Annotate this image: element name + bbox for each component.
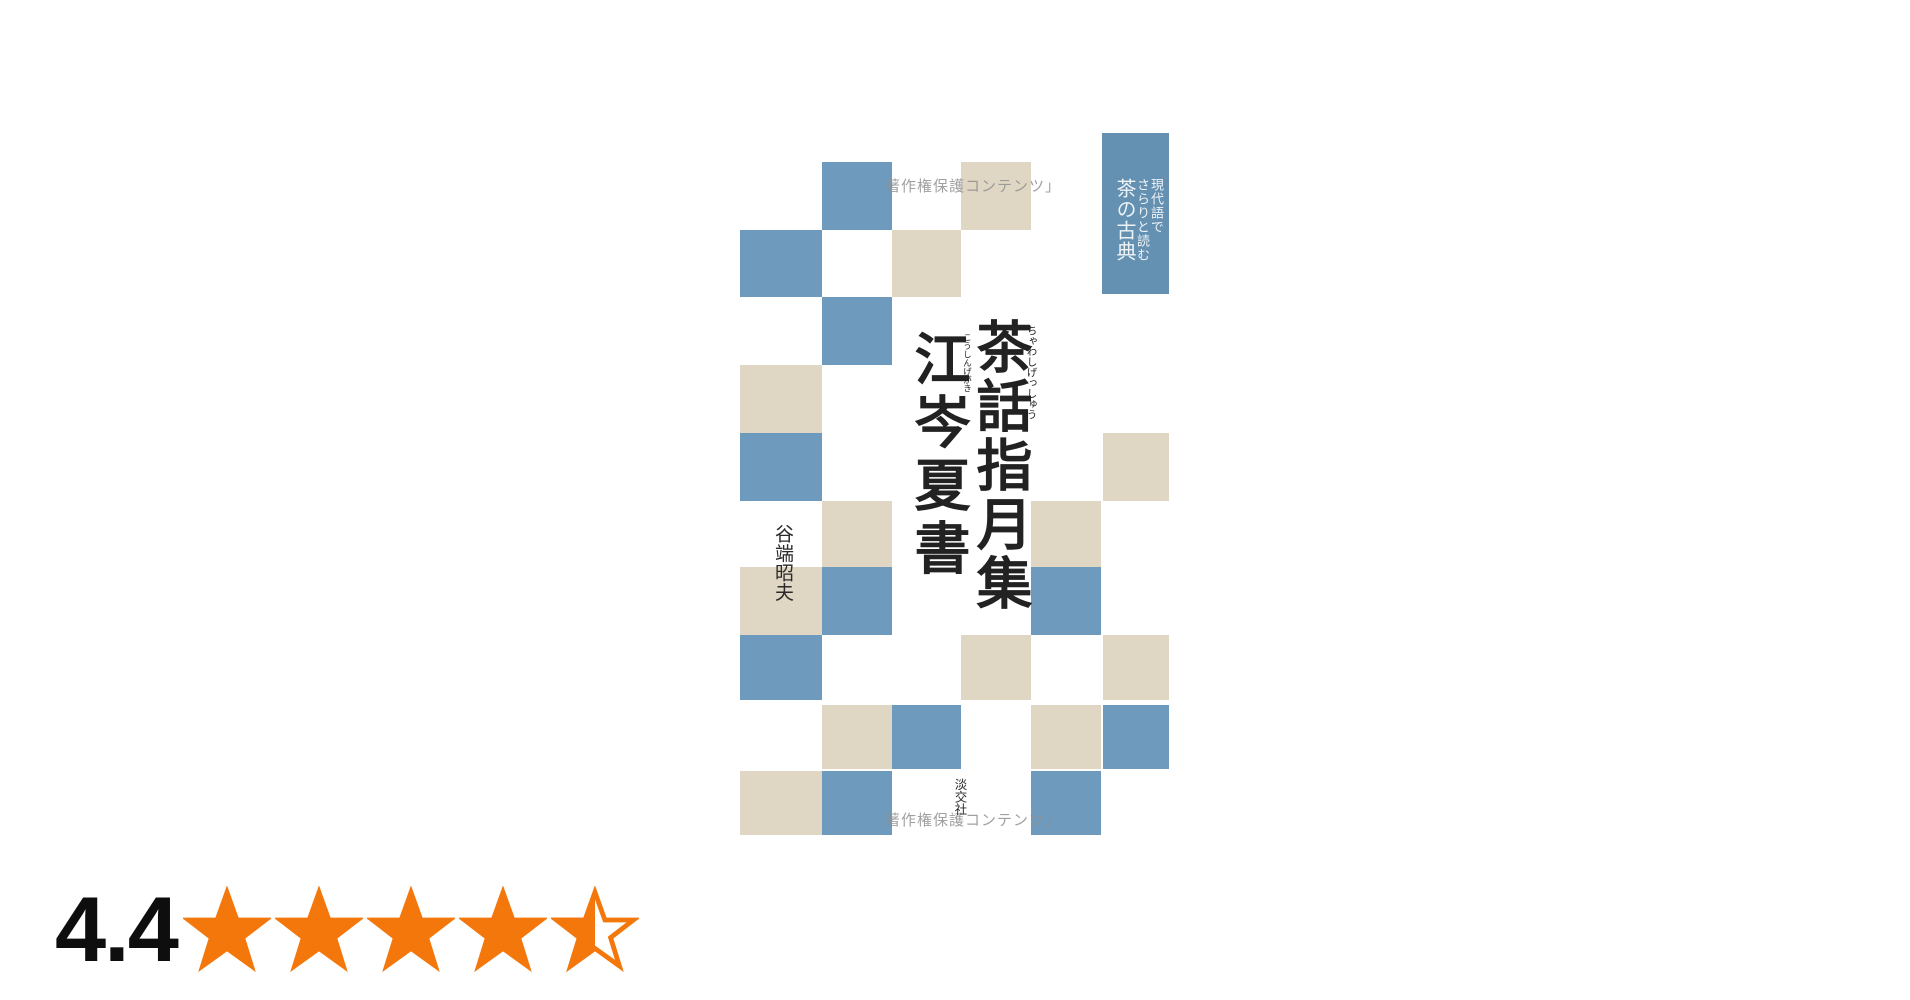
checker-square-beige — [961, 162, 1031, 230]
checker-square-beige — [1031, 705, 1101, 769]
checker-square-beige — [822, 705, 892, 769]
star-full-icon — [275, 886, 363, 974]
checker-square-beige — [822, 501, 892, 567]
checker-square-beige — [892, 230, 961, 297]
page: { "page": { "background": "#ffffff" }, "… — [0, 0, 1910, 1000]
checker-square-beige — [1103, 433, 1169, 501]
checker-square-blue — [740, 230, 822, 297]
star-full-icon — [183, 886, 271, 974]
checker-square-beige — [740, 365, 822, 433]
series-label-line1: 現代語で — [1149, 178, 1163, 294]
series-label: 現代語で さらりと読む 茶の古典 — [1102, 133, 1169, 294]
publisher-name: 淡交社 — [953, 778, 966, 816]
series-label-line2: さらりと読む — [1135, 178, 1149, 294]
checker-square-blue — [892, 705, 961, 769]
rating-value: 4.4 — [55, 884, 177, 976]
series-label-line3: 茶の古典 — [1113, 178, 1135, 294]
checker-square-beige — [961, 635, 1031, 700]
checker-square-blue — [822, 567, 892, 635]
star-full-icon — [367, 886, 455, 974]
product-image-book-cover[interactable]: 現代語で さらりと読む 茶の古典 著作権保護コンテンツ」 著作権保護コンテンツ」… — [740, 133, 1183, 843]
star-half-icon — [551, 886, 639, 974]
checker-square-blue — [822, 297, 892, 365]
book-title-main-furigana: ちゃわしげっしゅう — [1025, 325, 1036, 420]
book-title-main: 茶話指月集 — [971, 318, 1027, 613]
book-title-sub: 江岑夏書 — [909, 330, 965, 582]
checker-square-beige — [1031, 501, 1101, 567]
stars — [183, 886, 643, 974]
book-title-sub-furigana: こうしんげがき — [963, 333, 972, 393]
checker-square-blue — [1031, 567, 1101, 635]
rating-row[interactable]: 4.4 — [55, 876, 643, 984]
copyright-watermark-top: 著作権保護コンテンツ」 — [885, 175, 1061, 196]
checker-square-beige — [1103, 635, 1169, 700]
copyright-watermark-bottom: 著作権保護コンテンツ」 — [885, 809, 1061, 830]
checker-square-blue — [822, 162, 892, 230]
author-name: 谷端昭夫 — [773, 524, 792, 602]
checker-square-blue — [1103, 705, 1169, 769]
checker-square-blue — [740, 433, 822, 501]
checker-square-beige — [740, 771, 822, 835]
checker-square-blue — [740, 635, 822, 700]
star-full-icon — [459, 886, 547, 974]
checker-square-blue — [822, 771, 892, 835]
